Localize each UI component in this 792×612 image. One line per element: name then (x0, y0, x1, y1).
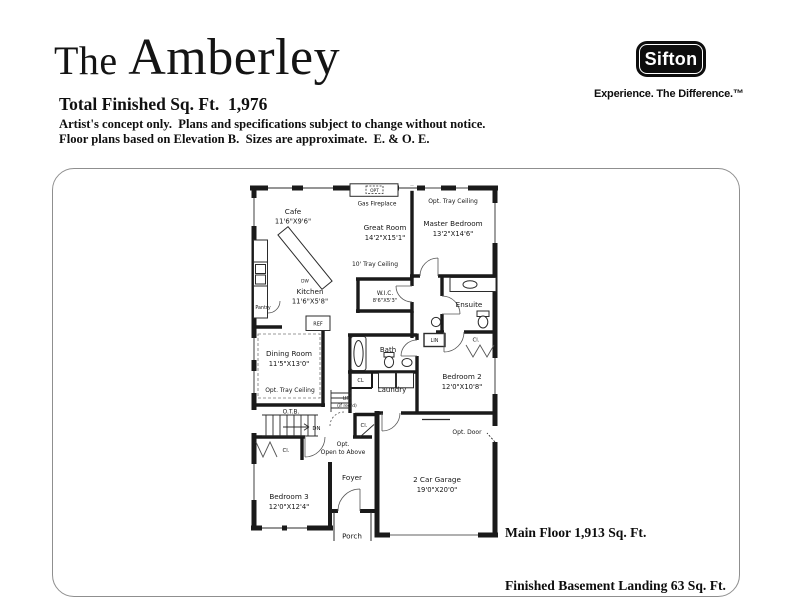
pantry-cabinet (254, 286, 268, 318)
garage-door-opening (390, 532, 478, 538)
sifton-logo: Sifton (636, 41, 706, 77)
page-title: The Amberley (54, 28, 340, 87)
label-pantry: Pantry (255, 305, 271, 311)
label-opt-fireplace: OPT (370, 188, 379, 194)
total-sqft-subtitle: Total Finished Sq. Ft. 1,976 (59, 94, 267, 115)
label-tray-ceiling-10: 10' Tray Ceiling (352, 261, 398, 268)
label-cl-laundry: CL (357, 378, 363, 384)
stairs-down (262, 415, 318, 436)
room-bath: Bath (380, 346, 396, 354)
label-cl-bedroom3: Cl. (283, 448, 290, 454)
sifton-logo-text: Sifton (645, 49, 698, 70)
room-master-bedroom: Master Bedroom (423, 219, 482, 228)
label-dw: DW (301, 279, 309, 285)
label-ref: REF (313, 322, 323, 328)
room-bedroom2: Bedroom 2 (442, 372, 481, 381)
brochure-page: The Amberley Total Finished Sq. Ft. 1,97… (0, 0, 792, 612)
floorplan-drawing: Cafe 11'6"X9'6" Great Room 14'2"X15'1" O… (250, 183, 500, 567)
summary-basement-landing: Finished Basement Landing 63 Sq. Ft. (505, 577, 726, 595)
kitchen-counter (254, 240, 268, 262)
room-great-room: Great Room (364, 223, 407, 232)
title-main: Amberley (128, 29, 340, 86)
area-summary: Main Floor 1,913 Sq. Ft. Finished Baseme… (505, 489, 726, 612)
room-laundry: Laundry (378, 386, 407, 394)
label-opt-open-1: Opt. (337, 441, 350, 448)
room-dining: Dining Room (266, 349, 312, 358)
room-foyer: Foyer (342, 473, 362, 482)
disclaimer-line-1: Artist's concept only. Plans and specifi… (59, 117, 485, 132)
title-prefix: The (54, 38, 128, 83)
room-cafe: Cafe (285, 207, 302, 216)
label-opt-tray-dining: Opt. Tray Ceiling (265, 387, 315, 394)
room-kitchen-dims: 11'6"X5'8" (292, 298, 328, 306)
room-ensuite: Ensuite (456, 300, 483, 309)
label-cl-bedroom2: Cl. (473, 338, 480, 344)
room-wic-dims: 8'6"X5'3" (373, 298, 397, 304)
summary-main-floor: Main Floor 1,913 Sq. Ft. (505, 524, 726, 542)
room-dining-dims: 11'5"X13'0" (269, 360, 310, 368)
label-if-reqd: (if req'd) (337, 403, 357, 409)
room-bedroom2-dims: 12'0"X10'8" (442, 383, 483, 391)
label-opt-tray-master: Opt. Tray Ceiling (428, 198, 478, 205)
bedroom3-closet-bifold (256, 442, 277, 457)
room-great-room-dims: 14'2"X15'1" (365, 234, 406, 242)
label-cl-foyer: Cl. (361, 423, 368, 429)
room-bedroom3: Bedroom 3 (269, 492, 308, 501)
room-bedroom3-dims: 12'0"X12'4" (269, 503, 310, 511)
label-opt-door: Opt. Door (452, 429, 482, 436)
room-garage-dims: 19'0"X20'0" (417, 486, 458, 494)
room-master-bedroom-dims: 13'2"X14'6" (433, 230, 474, 238)
brand-tagline: Experience. The Difference.™ (594, 88, 754, 100)
label-otb: O.T.B. (283, 410, 300, 416)
room-porch: Porch (342, 532, 362, 541)
room-wic: W.I.C. (377, 291, 394, 297)
room-garage: 2 Car Garage (413, 475, 461, 484)
kitchen-sink (254, 262, 268, 286)
label-lin: LIN (431, 338, 439, 344)
disclaimer-line-2: Floor plans based on Elevation B. Sizes … (59, 132, 430, 147)
label-up: UP (343, 396, 350, 402)
label-opt-open-2: Open to Above (321, 449, 366, 456)
label-dn: DN (312, 426, 320, 432)
room-kitchen: Kitchen (296, 287, 323, 296)
label-gas-fireplace: Gas Fireplace (358, 202, 397, 208)
room-cafe-dims: 11'6"X9'6" (275, 218, 311, 226)
bedroom2-closet-bifold (466, 345, 494, 357)
opt-door-opening (487, 426, 498, 442)
